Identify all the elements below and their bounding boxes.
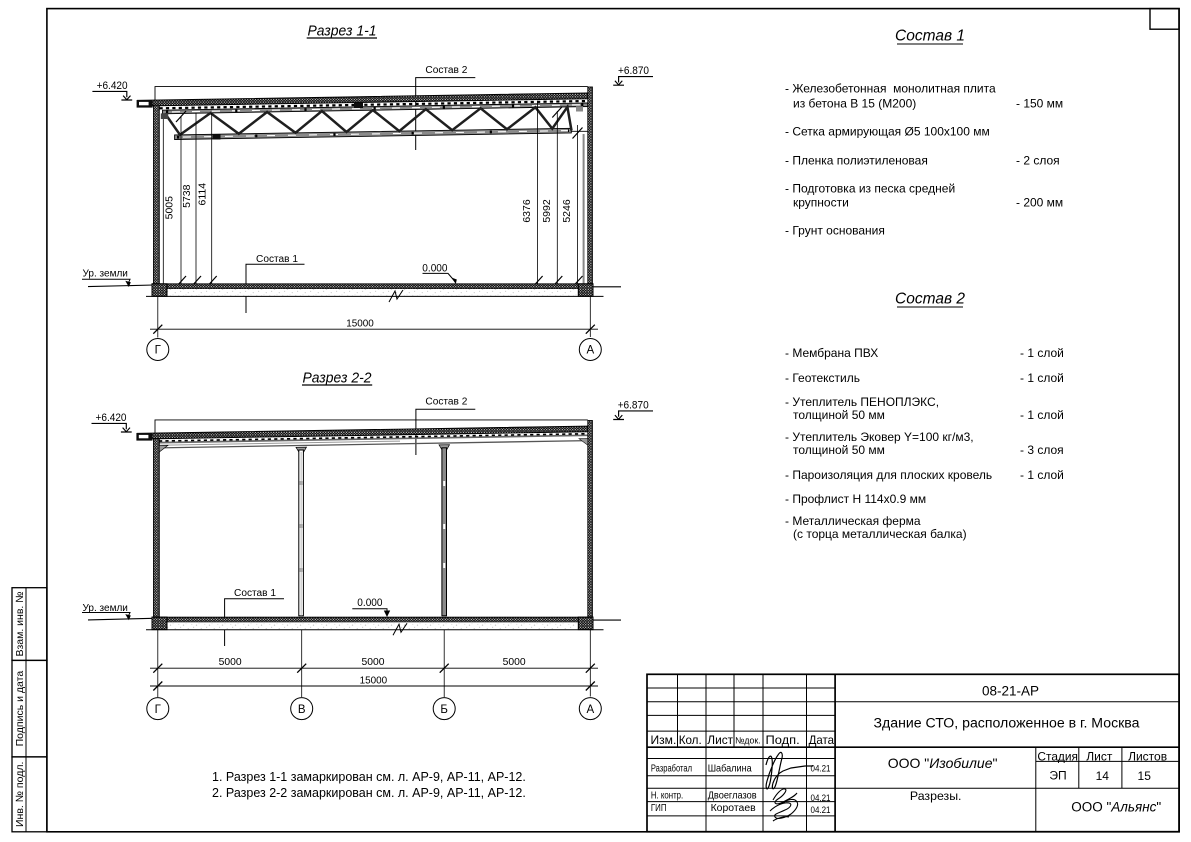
svg-text:Изм.: Изм. — [651, 733, 677, 747]
svg-text:Кол.: Кол. — [679, 733, 702, 747]
svg-text:+6.870: +6.870 — [618, 400, 649, 412]
svg-text:Коротаев: Коротаев — [711, 803, 756, 814]
svg-text:- Пленка полиэтиленовая: - Пленка полиэтиленовая — [785, 154, 928, 168]
svg-text:- Металлическая ферма: - Металлическая ферма — [785, 514, 921, 528]
svg-text:из бетона В 15 (М200): из бетона В 15 (М200) — [793, 97, 916, 111]
svg-text:Состав 2: Состав 2 — [895, 291, 965, 308]
svg-text:- Мембрана ПВХ: - Мембрана ПВХ — [785, 346, 878, 360]
svg-text:Б: Б — [440, 704, 448, 716]
svg-text:(с торца металлическая балка): (с торца металлическая балка) — [793, 527, 967, 541]
svg-text:5992: 5992 — [541, 199, 553, 223]
svg-text:5000: 5000 — [503, 657, 526, 668]
svg-text:04.21: 04.21 — [811, 764, 831, 775]
svg-text:Разрез 1-1: Разрез 1-1 — [308, 24, 377, 40]
svg-text:Разработал: Разработал — [651, 762, 692, 774]
svg-text:А: А — [586, 704, 594, 716]
svg-text:ЭП: ЭП — [1049, 769, 1066, 783]
svg-text:Здание СТО, расположенное в г.: Здание СТО, расположенное в г. Москва — [874, 715, 1141, 730]
svg-text:- Железобетонная монолитная п: - Железобетонная монолитная плита — [785, 82, 996, 96]
svg-text:15000: 15000 — [360, 676, 388, 687]
svg-text:15000: 15000 — [346, 319, 374, 330]
svg-text:5246: 5246 — [561, 199, 573, 223]
svg-text:А: А — [586, 345, 594, 357]
svg-text:14: 14 — [1096, 769, 1110, 783]
svg-text:- Грунт основания: - Грунт основания — [785, 224, 885, 238]
svg-text:0.000: 0.000 — [357, 597, 382, 609]
svg-text:Листов: Листов — [1128, 749, 1167, 763]
svg-text:толщиной 50 мм: толщиной 50 мм — [793, 408, 885, 422]
svg-text:+6.870: +6.870 — [618, 65, 649, 77]
svg-text:Г: Г — [155, 704, 162, 716]
svg-text:Н. контр.: Н. контр. — [651, 790, 683, 801]
svg-text:В: В — [298, 704, 306, 716]
svg-text:Дата: Дата — [809, 733, 835, 747]
svg-text:08-21-АР: 08-21-АР — [982, 683, 1039, 698]
svg-text:Подп.: Подп. — [766, 733, 800, 747]
svg-text:- 150 мм: - 150 мм — [1016, 97, 1063, 111]
svg-text:5000: 5000 — [362, 657, 385, 668]
svg-text:Г: Г — [155, 345, 162, 357]
svg-text:Инв. № подл.: Инв. № подл. — [14, 762, 26, 827]
svg-text:Стадия: Стадия — [1037, 749, 1078, 763]
svg-text:- Пароизоляция для плоских кро: - Пароизоляция для плоских кровель — [785, 468, 992, 482]
svg-text:- Сетка армирующая Ø5 100х100: - Сетка армирующая Ø5 100х100 мм — [785, 125, 990, 139]
svg-text:- 1 слой: - 1 слой — [1020, 346, 1064, 360]
svg-text:Состав 2: Состав 2 — [425, 397, 467, 408]
svg-text:15: 15 — [1138, 769, 1152, 783]
svg-text:- 200 мм: - 200 мм — [1016, 196, 1063, 210]
svg-text:ООО "Альянс": ООО "Альянс" — [1071, 800, 1161, 815]
svg-text:ООО "Изобилие": ООО "Изобилие" — [888, 755, 998, 771]
svg-text:Взам. инв. №: Взам. инв. № — [14, 591, 26, 656]
svg-text:2. Разрез 2-2 замаркирован см.: 2. Разрез 2-2 замаркирован см. л. АР-9, … — [212, 786, 526, 800]
svg-text:Состав 1: Состав 1 — [234, 588, 276, 599]
svg-text:0.000: 0.000 — [422, 263, 447, 275]
svg-text:Двоеглазов: Двоеглазов — [708, 790, 757, 801]
svg-text:- Подготовка из песка средней: - Подготовка из песка средней — [785, 182, 955, 196]
svg-text:Лист: Лист — [707, 733, 733, 747]
svg-text:толщиной 50 мм: толщиной 50 мм — [793, 443, 885, 457]
svg-text:1. Разрез 1-1 замаркирован см.: 1. Разрез 1-1 замаркирован см. л. АР-9, … — [212, 770, 526, 784]
svg-text:Разрез 2-2: Разрез 2-2 — [303, 371, 372, 387]
svg-text:Состав 2: Состав 2 — [425, 65, 467, 76]
svg-text:+6.420: +6.420 — [97, 80, 128, 92]
svg-text:- 1 слой: - 1 слой — [1020, 468, 1064, 482]
svg-text:5738: 5738 — [181, 184, 193, 208]
svg-text:- 1 слой: - 1 слой — [1020, 408, 1064, 422]
svg-text:Разрезы.: Разрезы. — [910, 789, 962, 803]
svg-text:- Геотекстиль: - Геотекстиль — [785, 371, 860, 385]
svg-text:6114: 6114 — [196, 183, 208, 206]
svg-text:№док.: №док. — [735, 735, 761, 745]
svg-text:- 2 слоя: - 2 слоя — [1016, 154, 1060, 168]
svg-text:ГИП: ГИП — [651, 803, 667, 814]
svg-text:6376: 6376 — [521, 199, 533, 223]
svg-text:- Утеплитель ПЕНОПЛЭКС,: - Утеплитель ПЕНОПЛЭКС, — [785, 395, 939, 409]
svg-text:- 3 слоя: - 3 слоя — [1020, 443, 1064, 457]
svg-text:- Утеплитель Эковер Y=100 кг/м: - Утеплитель Эковер Y=100 кг/м3, — [785, 430, 974, 444]
svg-text:Лист: Лист — [1086, 749, 1113, 763]
svg-text:Состав 1: Состав 1 — [256, 254, 298, 265]
svg-text:Шабалина: Шабалина — [708, 762, 752, 774]
svg-text:крупности: крупности — [793, 196, 849, 210]
svg-text:+6.420: +6.420 — [96, 412, 127, 424]
svg-text:04.21: 04.21 — [811, 805, 831, 816]
svg-text:- Профлист Н 114х0.9 мм: - Профлист Н 114х0.9 мм — [785, 492, 926, 506]
svg-text:- 1 слой: - 1 слой — [1020, 371, 1064, 385]
svg-text:04.21: 04.21 — [811, 793, 831, 804]
svg-text:Состав 1: Состав 1 — [895, 28, 965, 45]
svg-text:5005: 5005 — [164, 196, 176, 220]
svg-text:5000: 5000 — [219, 657, 242, 668]
svg-text:Подпись и дата: Подпись и дата — [14, 671, 26, 747]
svg-text:Ур. земли: Ур. земли — [83, 268, 128, 279]
